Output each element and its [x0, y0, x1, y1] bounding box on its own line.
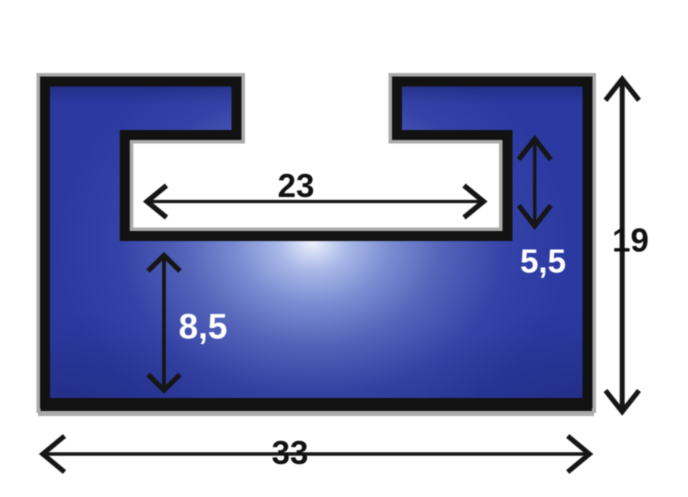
- svg-text:8,5: 8,5: [179, 308, 228, 347]
- svg-text:19: 19: [612, 222, 649, 259]
- svg-text:5,5: 5,5: [520, 243, 566, 280]
- svg-text:23: 23: [278, 167, 315, 204]
- svg-text:33: 33: [272, 434, 309, 471]
